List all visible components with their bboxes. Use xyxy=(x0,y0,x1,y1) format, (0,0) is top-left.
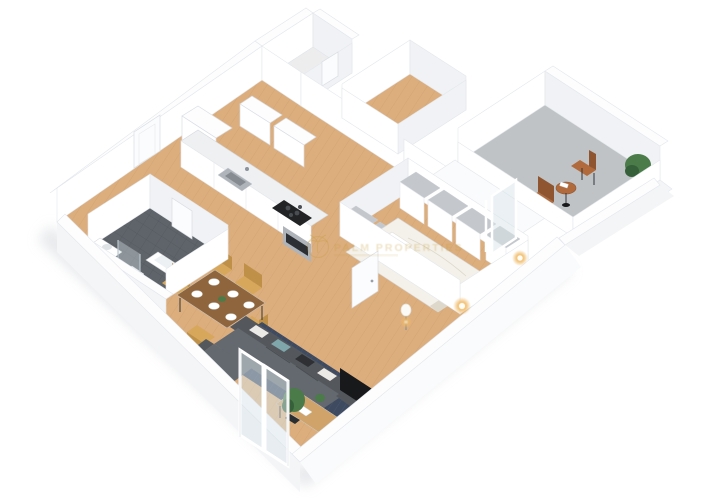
burner xyxy=(295,211,300,216)
glass-door-left xyxy=(240,350,263,450)
floor-lamp-glow xyxy=(400,316,412,328)
floorplan-3d-render: PALM PROPERTIES xyxy=(0,0,705,498)
bedside-lamp xyxy=(517,255,522,260)
table-centerpiece-plant xyxy=(218,296,226,302)
door-handle xyxy=(371,280,374,283)
glass-door-right xyxy=(265,366,288,466)
bedside-lamp xyxy=(459,303,465,309)
burner xyxy=(286,206,291,211)
burner xyxy=(289,213,293,217)
watermark-subtext-bar xyxy=(334,254,398,257)
coffee-table-plant xyxy=(315,394,325,402)
faucet xyxy=(245,167,249,171)
bistro-table-base xyxy=(562,203,570,207)
burner xyxy=(298,205,302,209)
floorplan-page: PALM PROPERTIES xyxy=(0,0,705,498)
floor-lamp-shade xyxy=(401,304,411,316)
watermark-brand-text: PALM PROPERTIES xyxy=(334,242,464,254)
